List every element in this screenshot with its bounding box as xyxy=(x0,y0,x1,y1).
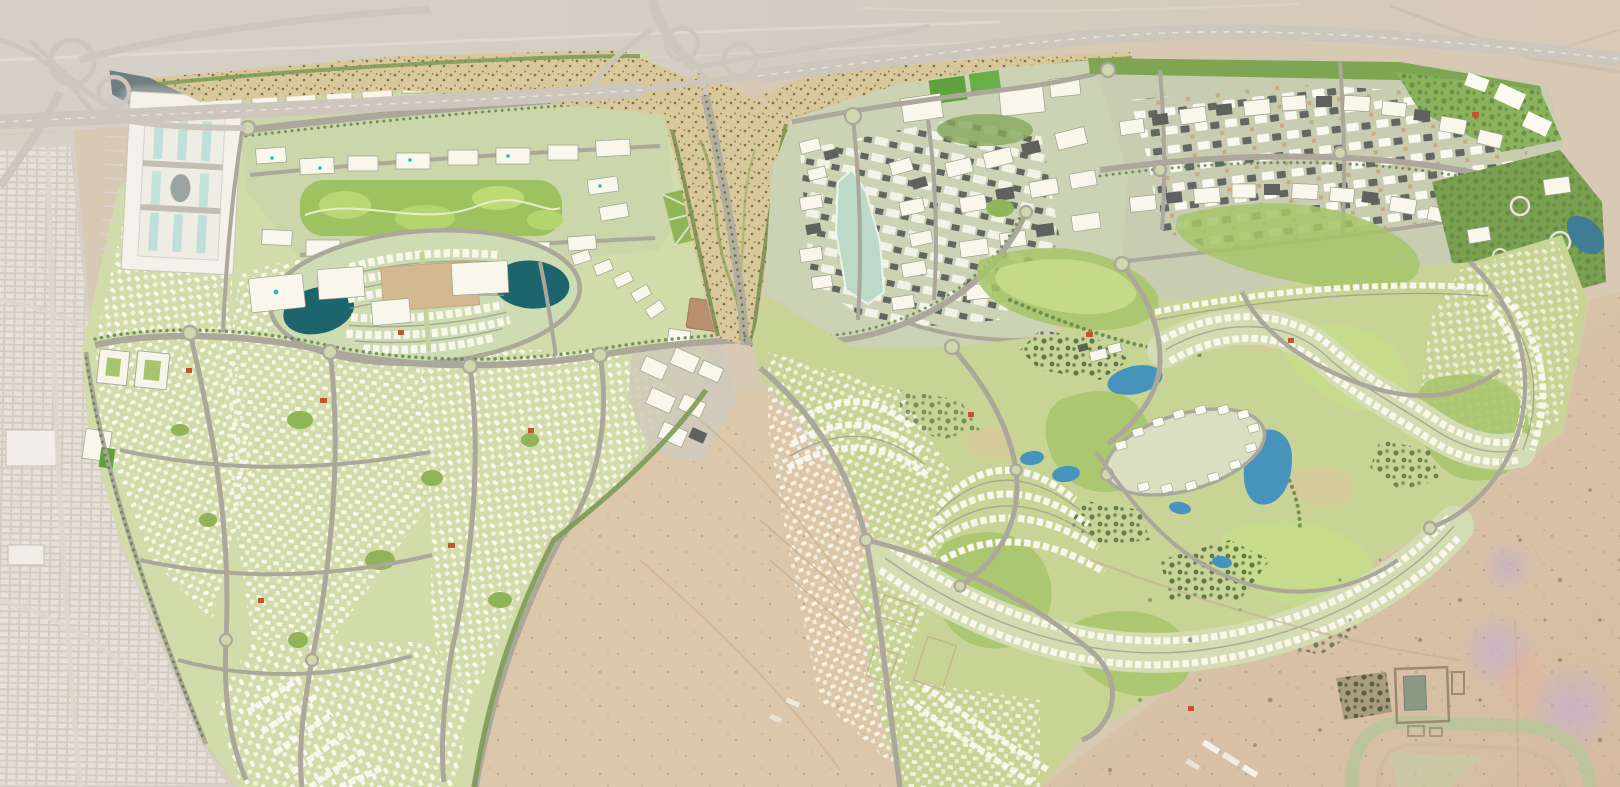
map-canvas xyxy=(0,0,1620,787)
masterplan-aerial-map xyxy=(0,0,1620,787)
bigbox-store xyxy=(6,430,56,466)
